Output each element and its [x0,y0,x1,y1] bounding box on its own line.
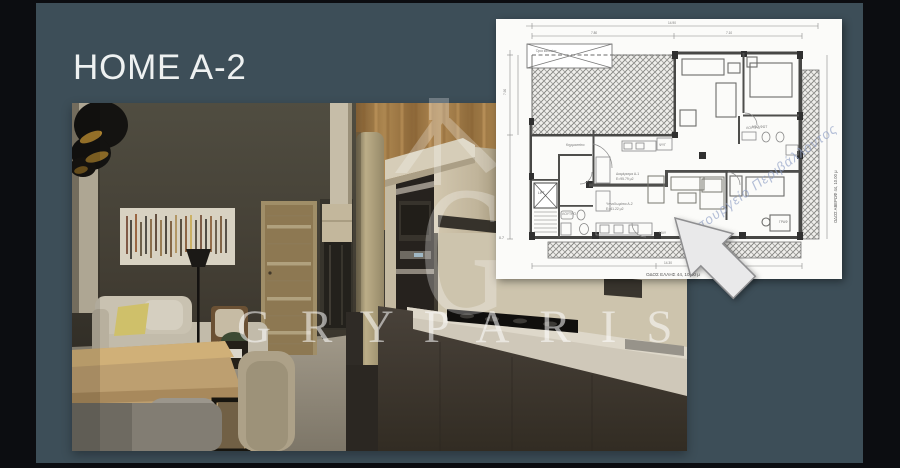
svg-text:G: G [420,149,508,325]
svg-text:ΛΟΥΤΡΟ: ΛΟΥΤΡΟ [562,212,576,216]
svg-text:Ε=41.22 μ2: Ε=41.22 μ2 [606,207,624,211]
svg-text:Κηρμασπίτα: Κηρμασπίτα [566,143,584,147]
svg-text:7.90: 7.90 [503,89,507,95]
svg-text:ΛΟΥΤΡΟ: ΛΟΥΤΡΟ [746,126,760,130]
svg-text:14.90: 14.90 [668,21,676,25]
svg-text:7.80: 7.80 [591,31,597,35]
svg-text:ΨΥΓ: ΨΥΓ [659,143,666,147]
svg-text:Όρια κατοικίας: Όρια κατοικίας [535,49,557,53]
svg-text:0.7: 0.7 [499,236,504,240]
svg-text:ΟΔΟΣ ΑΒΕΡΩΦ 44, 10.00 μ: ΟΔΟΣ ΑΒΕΡΩΦ 44, 10.00 μ [833,170,838,223]
svg-text:Ε=95.79 μ2: Ε=95.79 μ2 [616,177,634,181]
svg-text:Διαμέρισμα Α-1: Διαμέρισμα Α-1 [616,172,639,176]
svg-text:LIFT: LIFT [538,191,545,195]
svg-text:Υπνοδωμάτιο Α-2: Υπνοδωμάτιο Α-2 [606,202,633,206]
svg-text:7.10: 7.10 [726,31,732,35]
